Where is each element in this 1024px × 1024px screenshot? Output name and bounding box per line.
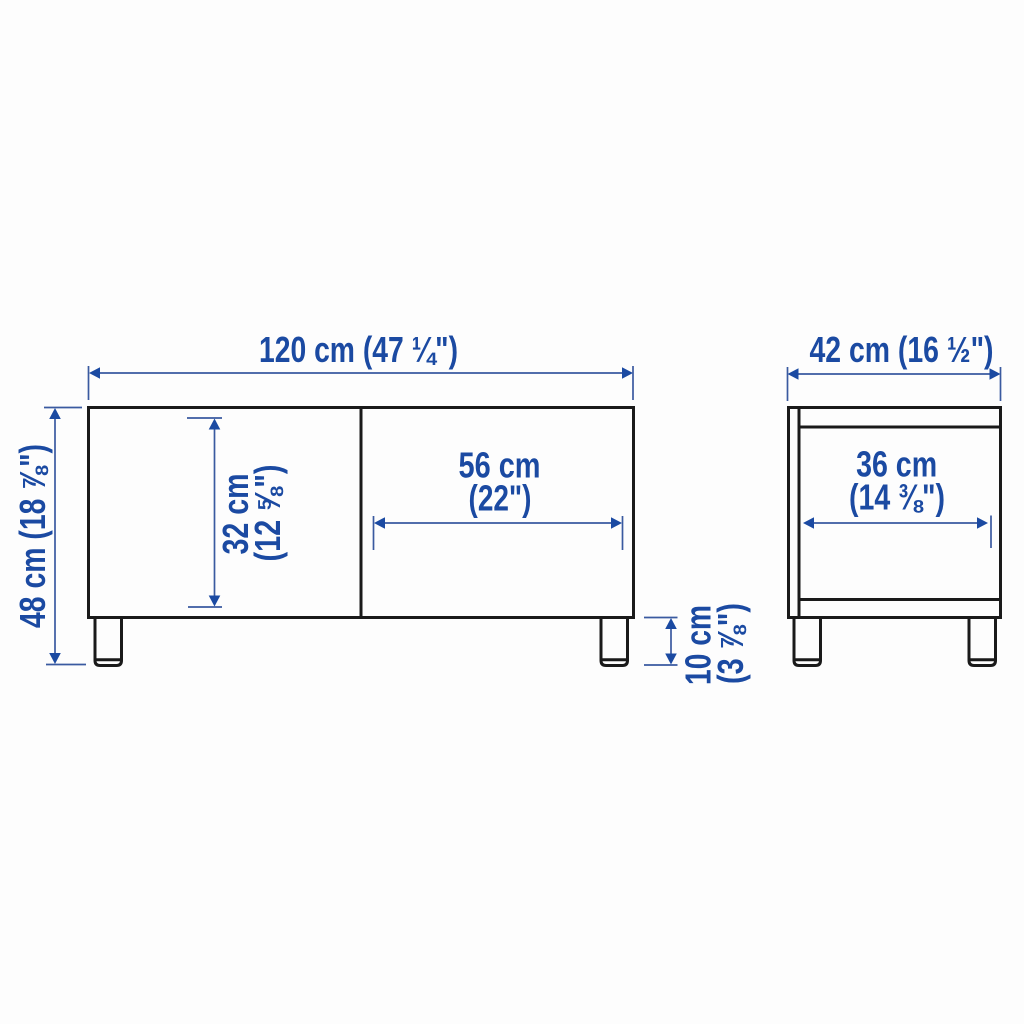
svg-text:120 cm (47 ¼"): 120 cm (47 ¼") bbox=[259, 329, 458, 370]
svg-text:42 cm (16 ½"): 42 cm (16 ½") bbox=[810, 329, 994, 370]
svg-text:(3 ⅞"): (3 ⅞") bbox=[710, 603, 751, 684]
svg-text:(14 ⅜"): (14 ⅜") bbox=[849, 477, 945, 518]
svg-text:48 cm (18 ⅞"): 48 cm (18 ⅞") bbox=[12, 444, 53, 628]
svg-text:(12 ⅝"): (12 ⅝") bbox=[247, 465, 288, 562]
svg-text:(22"): (22") bbox=[469, 478, 532, 519]
